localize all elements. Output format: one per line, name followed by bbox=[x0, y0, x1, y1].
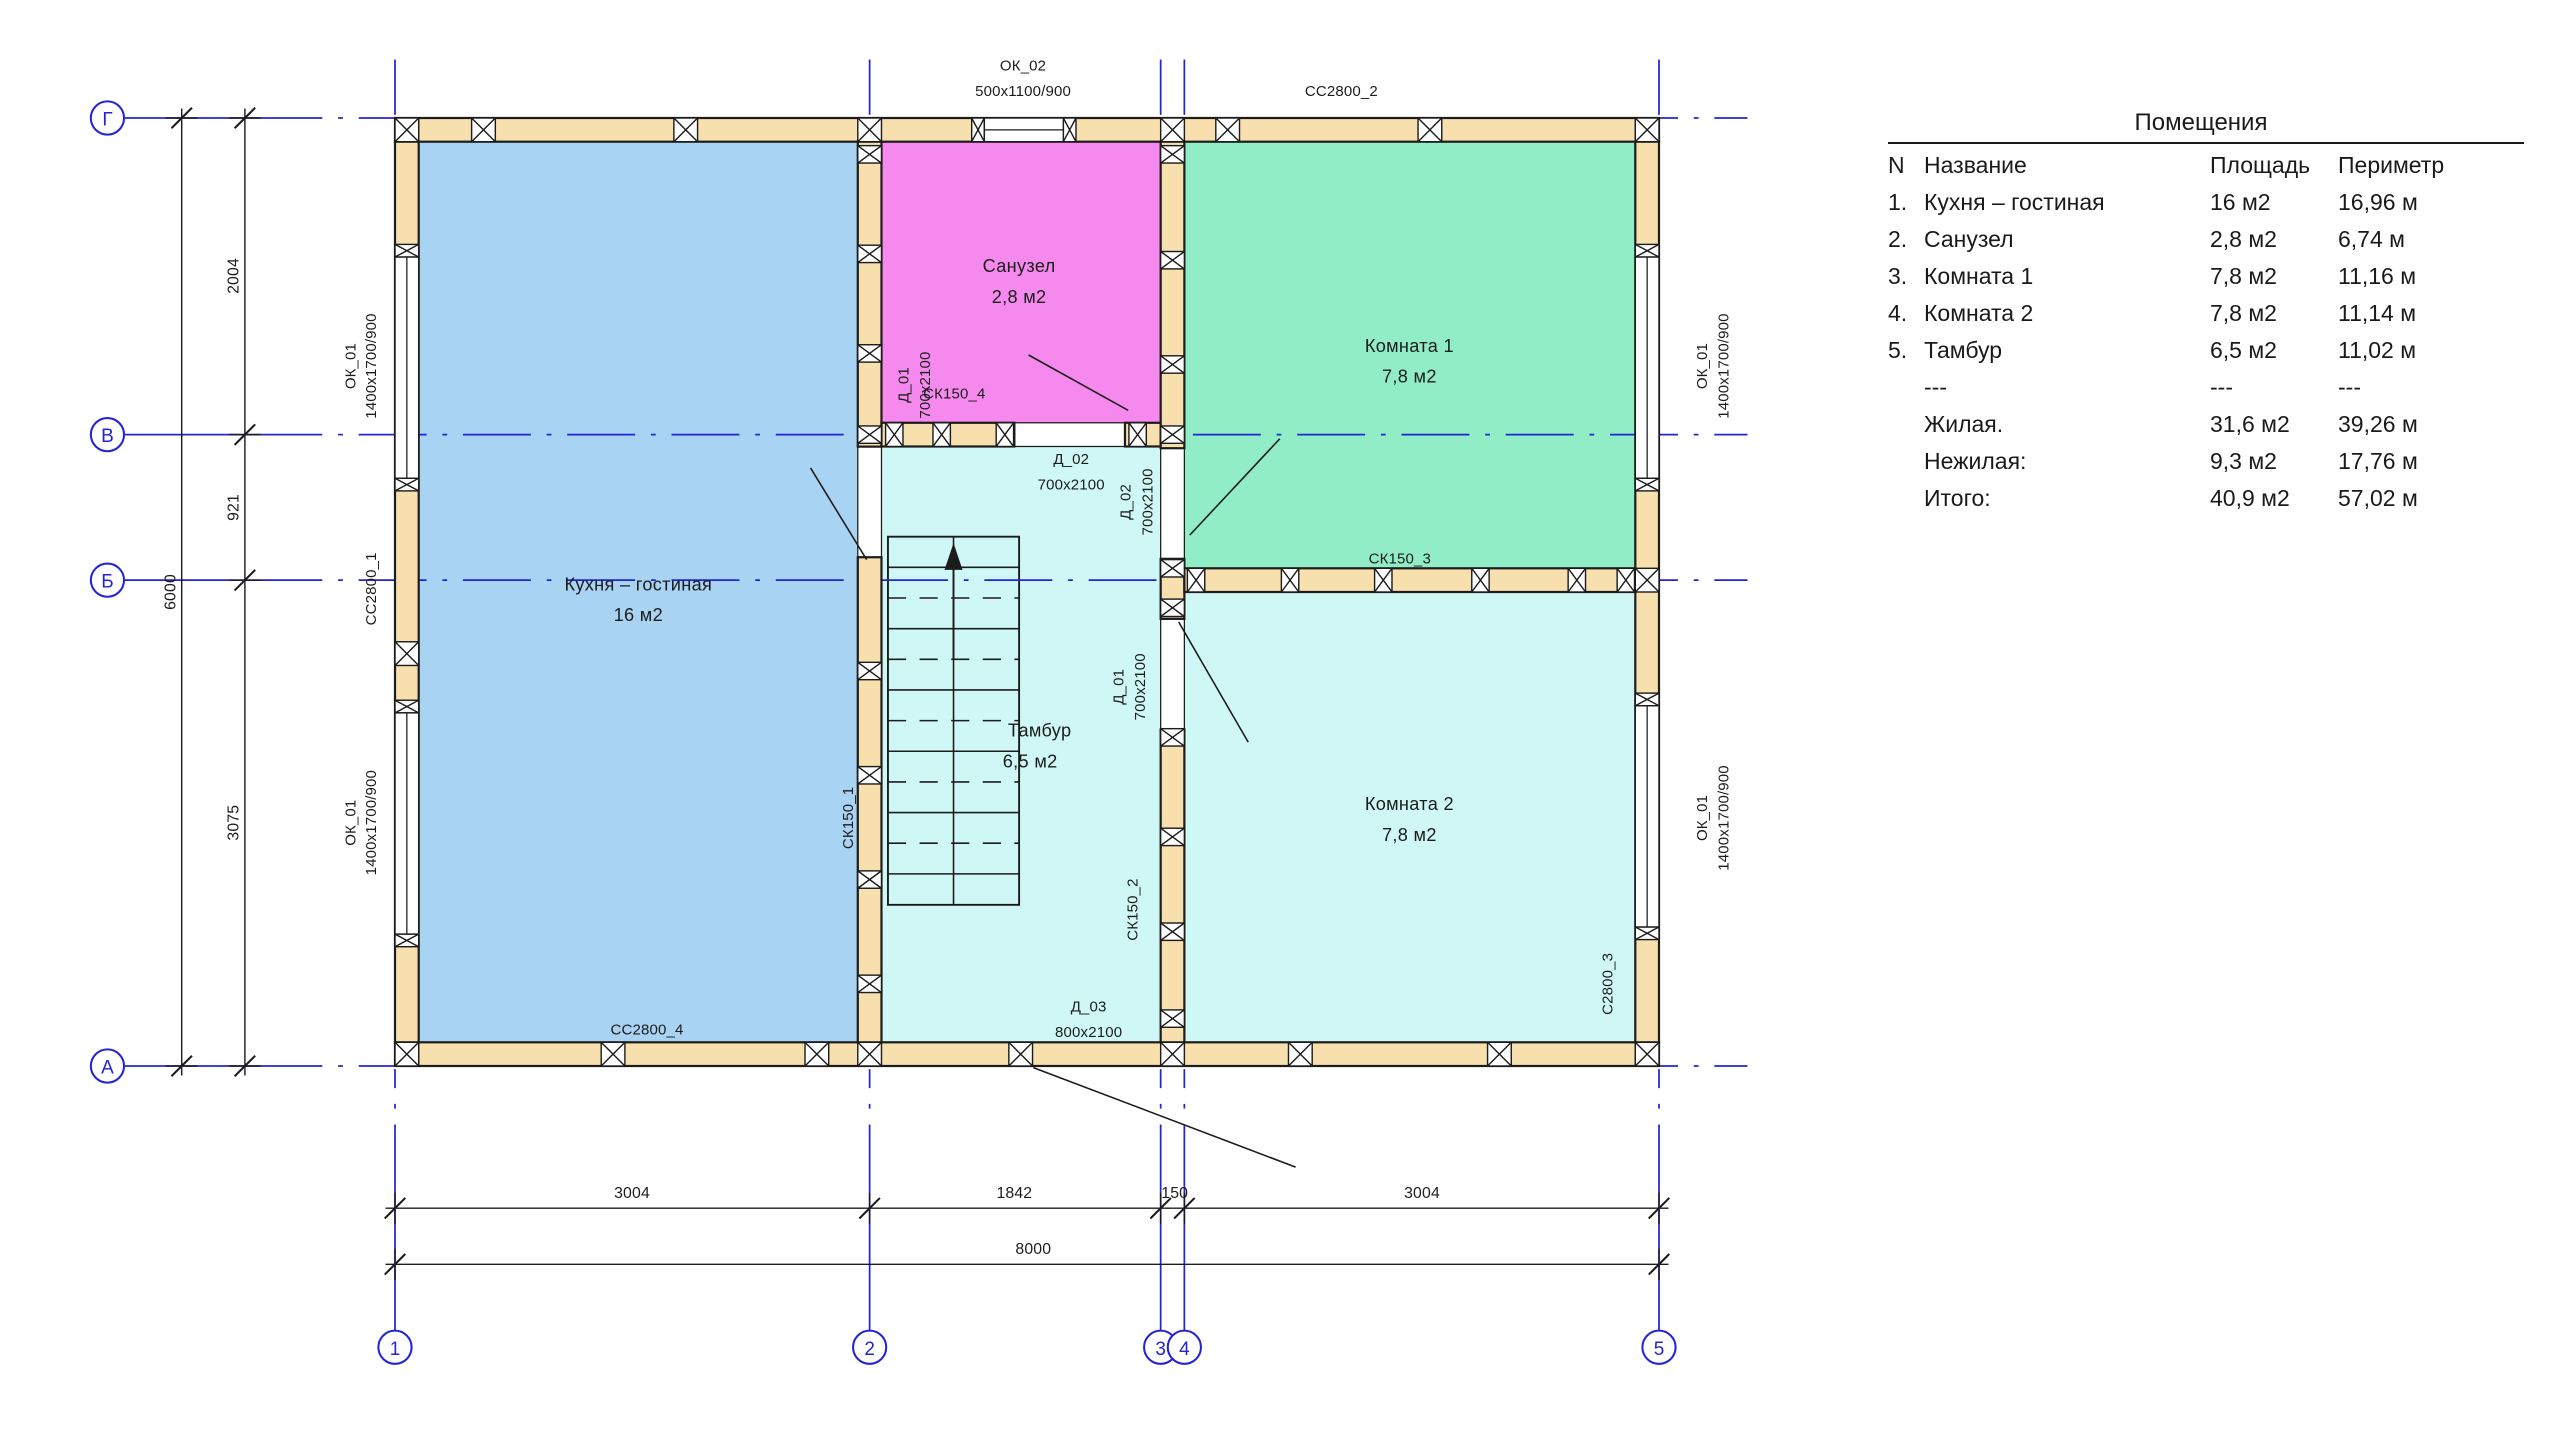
cell-name: Санузел bbox=[1924, 226, 2210, 252]
col-header-n: N bbox=[1888, 152, 1924, 178]
col-header-area: Площадь bbox=[2210, 152, 2338, 178]
rooms-table-title: Помещения bbox=[1888, 110, 2524, 142]
cell-area: 2,8 м2 bbox=[2210, 226, 2338, 252]
cell-area: 40,9 м2 bbox=[2210, 485, 2338, 511]
wall-label-c2800-3: С2800_3 bbox=[1599, 953, 1616, 1015]
table-row: 1. Кухня – гостиная 16 м2 16,96 м bbox=[1888, 183, 2524, 220]
axis-bubble-label-1: 1 bbox=[390, 1339, 401, 1360]
window-size-ok01-right-up: 1400х1700/900 bbox=[1716, 313, 1733, 418]
cell-perimeter: 11,02 м bbox=[2338, 337, 2524, 363]
cell-perimeter: 39,26 м bbox=[2338, 411, 2524, 437]
window-size-ok01-left-low: 1400х1700/900 bbox=[363, 770, 380, 876]
axis-bubble-label-v: В bbox=[101, 426, 114, 447]
door-label-d01-right: Д_01 bbox=[1110, 669, 1127, 705]
rooms-table-header: N Название Площадь Периметр bbox=[1888, 146, 2524, 183]
room-area-kitchen: 16 м2 bbox=[614, 605, 663, 625]
swing-d03-entry bbox=[1033, 1068, 1295, 1168]
rooms-table: Помещения N Название Площадь Периметр 1.… bbox=[1888, 110, 2524, 516]
cell-name: Тамбур bbox=[1924, 337, 2210, 363]
door-label-d02: Д_02 bbox=[1053, 451, 1089, 468]
dim-bottom-1842: 1842 bbox=[996, 1185, 1032, 1202]
axis-bubble-label-g: Г bbox=[102, 110, 112, 131]
cell-n: 3. bbox=[1888, 263, 1924, 289]
axis-bubble-label-2: 2 bbox=[864, 1339, 875, 1360]
cell-area: 9,3 м2 bbox=[2210, 448, 2338, 474]
cell-name: Комната 2 bbox=[1924, 300, 2210, 326]
door-size-d01-right: 700х2100 bbox=[1132, 653, 1149, 720]
col-header-name: Название bbox=[1924, 152, 2210, 178]
room-area-sanuzel: 2,8 м2 bbox=[992, 287, 1047, 307]
cell-area: 16 м2 bbox=[2210, 189, 2338, 215]
cell-area: 7,8 м2 bbox=[2210, 263, 2338, 289]
wall-axis34-lower bbox=[1161, 729, 1185, 1042]
cell-n: 4. bbox=[1888, 300, 1924, 326]
room-label-sanuzel: Санузел bbox=[983, 256, 1056, 276]
floor-plan-page: ОК_02 500х1100/900 СС2800_2 Кухня – гост… bbox=[0, 0, 2560, 1440]
wall-label-ck150-2: СК150_2 bbox=[1125, 878, 1142, 940]
cell-n: 2. bbox=[1888, 226, 1924, 252]
cell-perimeter: 11,16 м bbox=[2338, 263, 2524, 289]
room-area-komnata1: 7,8 м2 bbox=[1382, 367, 1437, 387]
dim-left-total-6000: 6000 bbox=[162, 574, 179, 610]
col-header-perimeter: Периметр bbox=[2338, 152, 2524, 178]
axis-bubble-label-5: 5 bbox=[1654, 1339, 1665, 1360]
window-size-ok01-left-up: 1400х1700/900 bbox=[363, 313, 380, 418]
opening-d01-kitchen bbox=[858, 447, 882, 558]
dim-bottom-3004b: 3004 bbox=[1404, 1185, 1440, 1202]
cell-area: 6,5 м2 bbox=[2210, 337, 2338, 363]
table-row-total-living: Жилая. 31,6 м2 39,26 м bbox=[1888, 405, 2524, 442]
cell-perimeter: --- bbox=[2338, 374, 2524, 400]
opening-d01-komnata2 bbox=[1161, 619, 1185, 730]
room-label-komnata1: Комната 1 bbox=[1365, 336, 1454, 356]
opening-d02-sanuzel bbox=[1014, 423, 1125, 447]
cell-n: 5. bbox=[1888, 337, 1924, 363]
door-size-d02-right: 700х2100 bbox=[1140, 468, 1157, 535]
room-fill-komnata2 bbox=[1184, 592, 1635, 1042]
axis-bubble-label-3: 3 bbox=[1155, 1339, 1166, 1360]
table-row: 2. Санузел 2,8 м2 6,74 м bbox=[1888, 220, 2524, 257]
cell-name: Жилая. bbox=[1924, 411, 2210, 437]
rooms-table-rule bbox=[1888, 142, 2524, 144]
dim-bottom-total-8000: 8000 bbox=[1015, 1241, 1051, 1258]
window-label-ok01-right-up: ОК_01 bbox=[1694, 343, 1711, 389]
door-label-d03: Д_03 bbox=[1071, 998, 1107, 1015]
window-label-ok02: ОК_02 bbox=[1000, 58, 1046, 75]
window-label-ok01-left-low: ОК_01 bbox=[343, 800, 360, 846]
cell-name: Итого: bbox=[1924, 485, 2210, 511]
wall-label-cc2800-1: СС2800_1 bbox=[363, 552, 380, 625]
room-area-komnata2: 7,8 м2 bbox=[1382, 825, 1437, 845]
table-row-separator: --- --- --- bbox=[1888, 368, 2524, 405]
cell-perimeter: 6,74 м bbox=[2338, 226, 2524, 252]
cell-perimeter: 11,14 м bbox=[2338, 300, 2524, 326]
cell-name: --- bbox=[1924, 374, 2210, 400]
wall-label-ck150-1: СК150_1 bbox=[840, 787, 857, 849]
door-size-d01-left: 700х2100 bbox=[917, 351, 934, 418]
wall-axis2-upper bbox=[858, 142, 882, 447]
door-size-d02: 700х2100 bbox=[1038, 476, 1105, 493]
door-size-d03: 800х2100 bbox=[1055, 1024, 1122, 1041]
wall-label-cc2800-4: СС2800_4 bbox=[611, 1021, 684, 1038]
window-label-ok01-left-up: ОК_01 bbox=[343, 343, 360, 389]
table-row-total-nonliving: Нежилая: 9,3 м2 17,76 м bbox=[1888, 442, 2524, 479]
cell-perimeter: 57,02 м bbox=[2338, 485, 2524, 511]
table-row: 5. Тамбур 6,5 м2 11,02 м bbox=[1888, 331, 2524, 368]
room-label-komnata2: Комната 2 bbox=[1365, 794, 1454, 814]
wall-label-ck150-3: СК150_3 bbox=[1369, 551, 1431, 568]
dim-left-921: 921 bbox=[226, 494, 243, 521]
table-row: 3. Комната 1 7,8 м2 11,16 м bbox=[1888, 257, 2524, 294]
wall-axis34-upper bbox=[1161, 142, 1185, 449]
cell-name: Кухня – гостиная bbox=[1924, 189, 2210, 215]
window-label-ok01-right-low: ОК_01 bbox=[1694, 795, 1711, 841]
axis-bubble-label-b: Б bbox=[101, 572, 113, 593]
dim-left-3075: 3075 bbox=[226, 805, 243, 841]
door-label-d01-left: Д_01 bbox=[896, 367, 913, 403]
cell-area: --- bbox=[2210, 374, 2338, 400]
cell-perimeter: 17,76 м bbox=[2338, 448, 2524, 474]
cell-n: 1. bbox=[1888, 189, 1924, 215]
window-size-ok02: 500х1100/900 bbox=[975, 83, 1071, 100]
cell-perimeter: 16,96 м bbox=[2338, 189, 2524, 215]
wall-axis2-lower bbox=[858, 557, 882, 1042]
dim-left-2004: 2004 bbox=[226, 258, 243, 294]
room-label-tambur: Тамбур bbox=[1008, 721, 1072, 741]
table-row: 4. Комната 2 7,8 м2 11,14 м bbox=[1888, 294, 2524, 331]
dim-bottom-150: 150 bbox=[1161, 1185, 1188, 1202]
cell-name: Нежилая: bbox=[1924, 448, 2210, 474]
room-area-tambur: 6,5 м2 bbox=[1003, 751, 1058, 771]
dim-bottom-3004a: 3004 bbox=[614, 1185, 650, 1202]
opening-d02-komnata1 bbox=[1161, 448, 1185, 559]
cell-name: Комната 1 bbox=[1924, 263, 2210, 289]
door-label-d02-right: Д_02 bbox=[1117, 484, 1134, 520]
cell-area: 31,6 м2 bbox=[2210, 411, 2338, 437]
axis-bubble-label-a: А bbox=[101, 1058, 114, 1079]
cell-area: 7,8 м2 bbox=[2210, 300, 2338, 326]
table-row-total: Итого: 40,9 м2 57,02 м bbox=[1888, 479, 2524, 516]
wall-label-cc2800-2: СС2800_2 bbox=[1305, 83, 1378, 100]
room-label-kitchen: Кухня – гостиная bbox=[564, 574, 712, 594]
window-size-ok01-right-low: 1400х1700/900 bbox=[1716, 765, 1733, 871]
axis-bubble-label-4: 4 bbox=[1179, 1339, 1190, 1360]
